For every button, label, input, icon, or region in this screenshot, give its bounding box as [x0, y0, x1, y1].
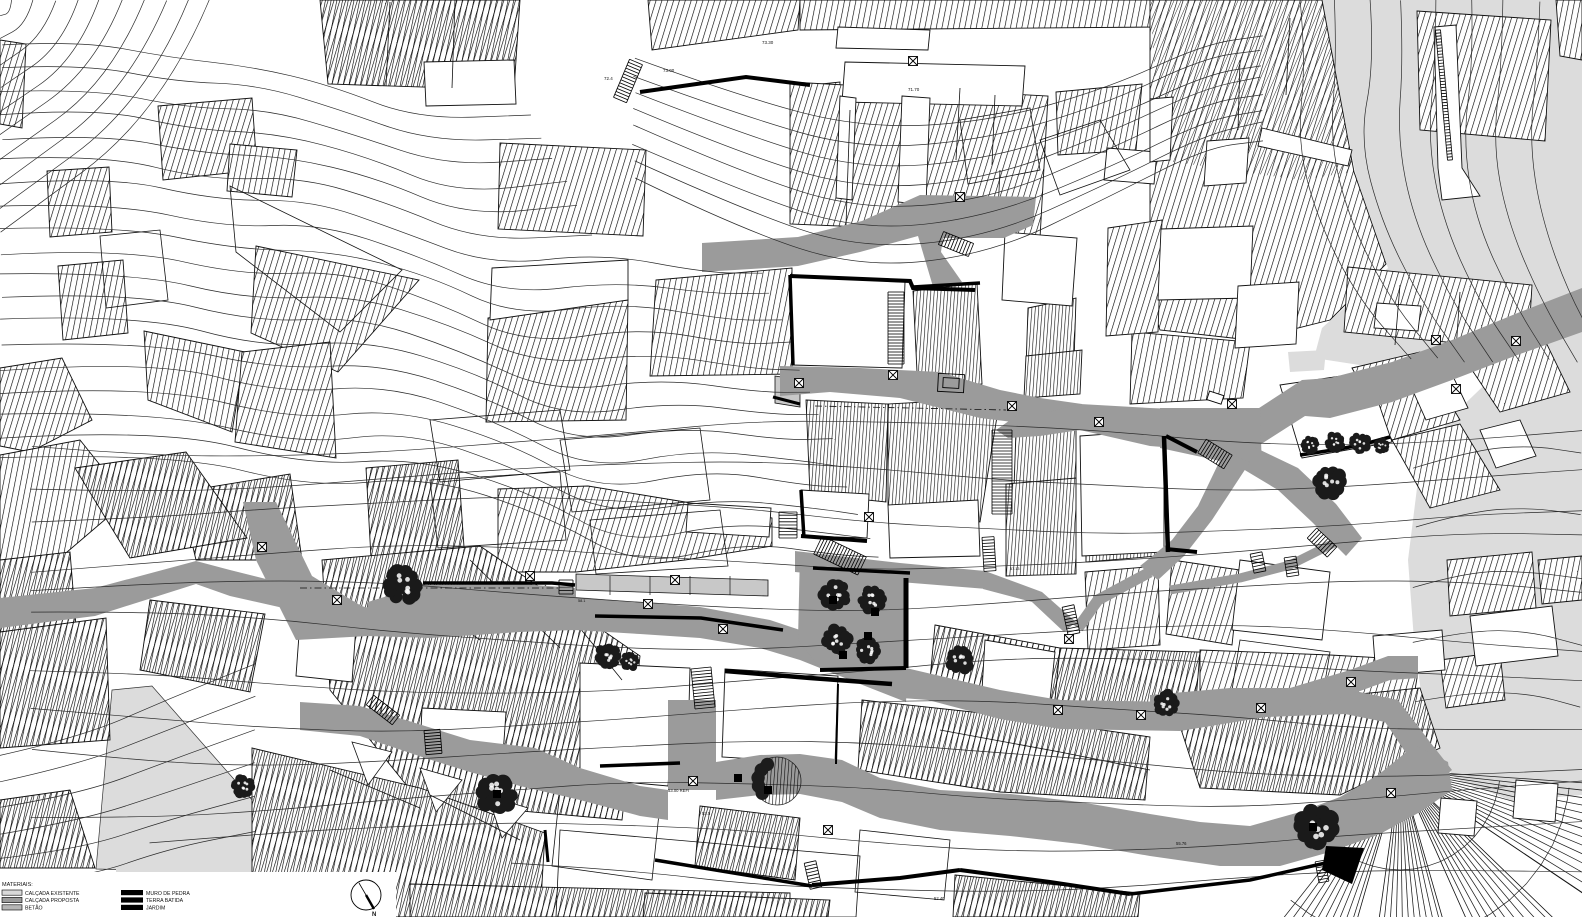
svg-text:N: N: [372, 912, 376, 917]
svg-text:MATERIAIS:: MATERIAIS:: [2, 882, 33, 888]
svg-text:73.30: 73.30: [762, 40, 774, 45]
svg-text:CALÇADA PROPOSTA: CALÇADA PROPOSTA: [25, 898, 80, 904]
svg-text:71.70: 71.70: [908, 87, 920, 92]
svg-text:MURO DE PEDRA: MURO DE PEDRA: [146, 891, 190, 897]
svg-text:TERRA BATIDA: TERRA BATIDA: [146, 898, 184, 904]
svg-text:58.1: 58.1: [578, 599, 585, 603]
svg-text:57.13: 57.13: [1010, 567, 1020, 571]
svg-text:55.76: 55.76: [1176, 841, 1187, 846]
svg-text:BETÃO: BETÃO: [25, 905, 43, 912]
svg-text:JARDIM: JARDIM: [146, 906, 165, 912]
svg-text:72.4: 72.4: [604, 76, 613, 81]
svg-text:CALÇADA EXISTENTE: CALÇADA EXISTENTE: [25, 891, 80, 897]
svg-text:53.5: 53.5: [702, 811, 711, 816]
svg-text:52.40: 52.40: [934, 896, 945, 901]
svg-text:53.00 REFI: 53.00 REFI: [668, 788, 689, 793]
svg-text:73.00: 73.00: [663, 68, 675, 73]
